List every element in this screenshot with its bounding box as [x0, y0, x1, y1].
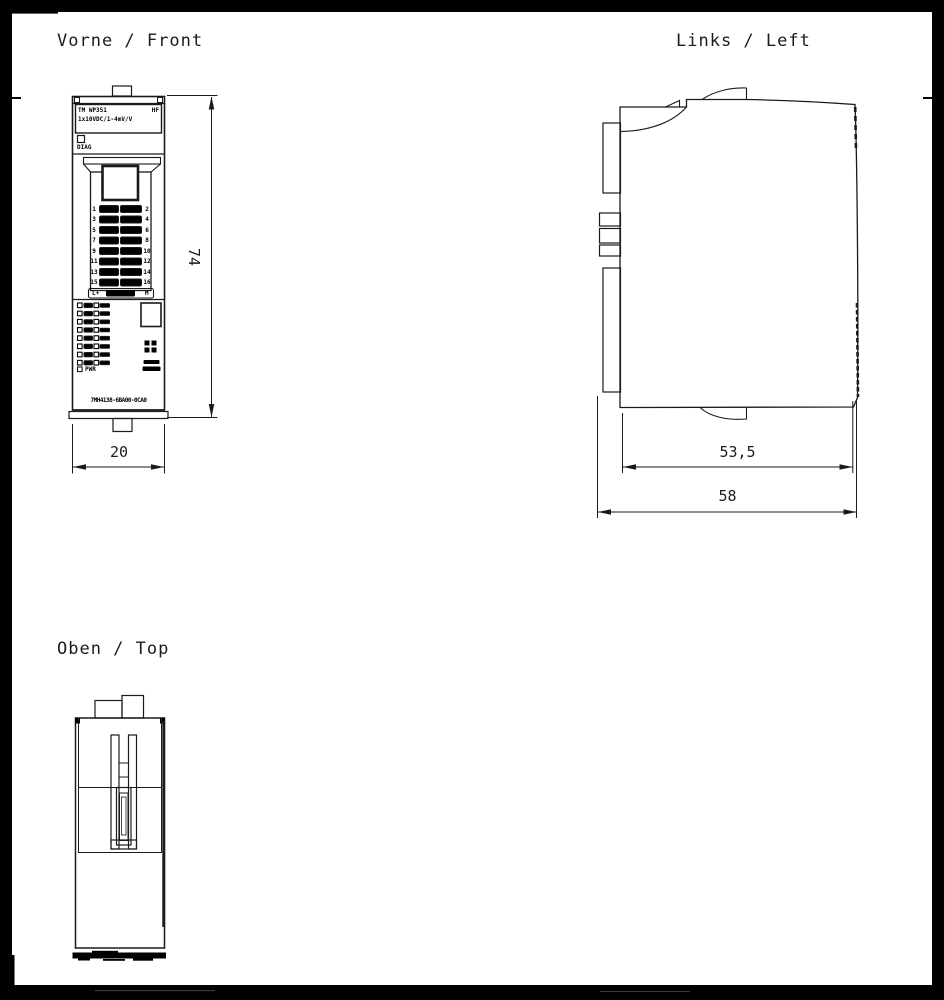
terminal-number: 8	[142, 237, 152, 244]
din-rail-contact-strip	[73, 951, 167, 961]
pwr-led	[78, 367, 83, 372]
matrix-code-icon	[145, 341, 157, 353]
coding-window	[103, 166, 139, 200]
supply-label-m: M	[145, 290, 149, 297]
front-view-label: Vorne / Front	[57, 31, 203, 51]
terminal-number: 14	[142, 269, 152, 276]
part-number: 7MH4138-6BA00-0CA0	[74, 397, 163, 404]
status-led-field	[78, 303, 110, 372]
dim-height-74: 74	[185, 241, 203, 273]
terminal-number: 11	[89, 258, 99, 265]
terminal-number: 6	[142, 227, 152, 234]
version-text-blobs	[143, 360, 161, 371]
pwr-label: PWR	[85, 366, 96, 373]
dim-depth-58: 58	[598, 487, 857, 505]
terminal-number: 4	[142, 216, 152, 223]
terminal-number: 7	[89, 237, 99, 244]
terminal-rows	[100, 206, 142, 287]
supply-label-lplus: L+	[92, 290, 99, 297]
front-view-drawing	[69, 86, 168, 432]
terminal-number: 9	[89, 248, 99, 255]
terminal-number: 13	[89, 269, 99, 276]
left-view-drawing	[600, 88, 859, 419]
top-view-label: Oben / Top	[57, 639, 169, 659]
module-type-name: TM WP351	[78, 107, 107, 114]
top-view-drawing	[73, 696, 167, 961]
dimension-drawing-page: Vorne / Front Links / Left Oben / Top 74…	[0, 0, 944, 1000]
dim-width-20: 20	[73, 443, 165, 461]
terminal-number: 12	[142, 258, 152, 265]
terminal-number: 10	[142, 248, 152, 255]
terminal-number: 16	[142, 279, 152, 286]
terminal-number: 5	[89, 227, 99, 234]
terminal-number: 3	[89, 216, 99, 223]
terminal-number: 1	[89, 206, 99, 213]
left-view-label: Links / Left	[676, 31, 811, 51]
diag-label: DIAG	[77, 144, 91, 151]
module-type-line1: TM WP351 HF	[78, 107, 159, 114]
module-type-line2: 1x10VDC/1-4mV/V	[78, 116, 132, 123]
label-window	[141, 303, 161, 327]
module-type-variant: HF	[152, 107, 159, 114]
terminal-number: 2	[142, 206, 152, 213]
dim-depth-53-5: 53,5	[622, 443, 853, 461]
terminal-number: 15	[89, 279, 99, 286]
